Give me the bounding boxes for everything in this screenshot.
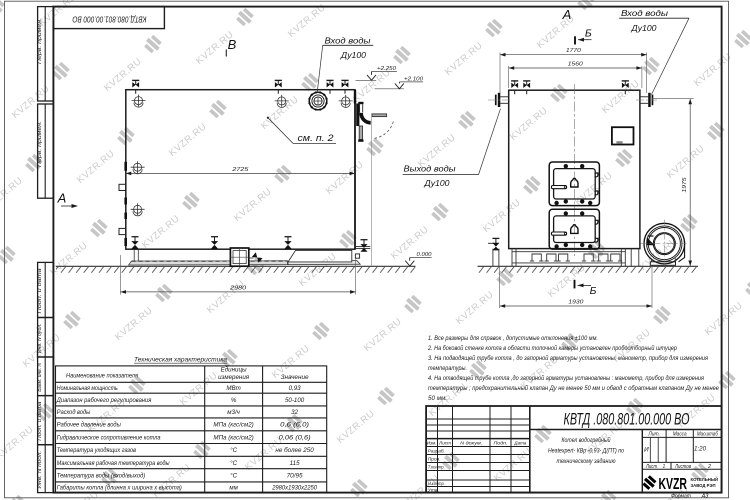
- svg-text:Ду100: Ду100: [630, 24, 657, 33]
- svg-text:KVZR: KVZR: [659, 476, 688, 493]
- svg-text:Температура воды (вход/выход): Температура воды (вход/выход): [57, 472, 145, 480]
- svg-text:Расход воды: Расход воды: [57, 408, 91, 416]
- svg-text:температуры ; предохранительны: температуры ; предохранительный клапан Д…: [428, 384, 719, 392]
- svg-text:Масштаб: Масштаб: [697, 432, 718, 438]
- svg-text:Н.контр.: Н.контр.: [428, 481, 445, 487]
- svg-text:3. На подводящей трубе котла: 3. На подводящей трубе котла , до запорн…: [428, 354, 709, 362]
- svg-text:Максимальная рабочая температу: Максимальная рабочая температура воды: [57, 459, 170, 467]
- svg-text:1560: 1560: [568, 62, 584, 68]
- svg-text:Вход воды: Вход воды: [621, 9, 668, 18]
- svg-text:°С: °С: [230, 447, 237, 454]
- svg-text:Лист: Лист: [438, 440, 451, 446]
- svg-text:0,6 (6,0): 0,6 (6,0): [280, 422, 309, 429]
- svg-text:Б: Б: [590, 285, 597, 297]
- svg-text:КВТД.080.801.00.000 ВО: КВТД.080.801.00.000 ВО: [73, 14, 147, 23]
- svg-text:МВт: МВт: [226, 385, 240, 392]
- svg-text:%: %: [231, 397, 237, 404]
- svg-text:Взам. инв. N: Взам. инв. N: [37, 363, 43, 392]
- svg-text:2980х1930х2250: 2980х1930х2250: [271, 484, 317, 491]
- svg-text:А3: А3: [701, 494, 710, 500]
- svg-text:Рабочее давление воды: Рабочее давление воды: [57, 421, 121, 429]
- svg-text:0,06 (0,6): 0,06 (0,6): [279, 434, 311, 441]
- svg-text:+2.250: +2.250: [377, 66, 397, 72]
- svg-text:1. Все размеры для справок ,: 1. Все размеры для справок , допустимые …: [428, 334, 598, 342]
- svg-text:МПа (кгс/см2): МПа (кгс/см2): [213, 423, 253, 429]
- svg-text:Котел водогрейный: Котел водогрейный: [562, 436, 611, 444]
- svg-text:Перв. примен.: Перв. примен.: [37, 121, 43, 167]
- svg-text:0,93: 0,93: [289, 385, 302, 392]
- svg-text:Heatexpert- КВр -0,93- Д(ПТ): Heatexpert- КВр -0,93- Д(ПТ) по: [548, 447, 624, 454]
- svg-text:техническому заданию: техническому заданию: [557, 457, 616, 465]
- svg-text:Выход воды: Выход воды: [404, 164, 456, 173]
- svg-text:Б: Б: [585, 27, 592, 39]
- svg-text:А: А: [57, 191, 67, 206]
- svg-text:А: А: [562, 7, 572, 22]
- svg-text:32: 32: [291, 409, 298, 416]
- svg-text:Перв. примен.: Перв. примен.: [37, 18, 43, 64]
- svg-text:Лит.: Лит.: [647, 432, 660, 438]
- svg-text:Подп. и дата: Подп. и дата: [37, 401, 43, 440]
- svg-text:Инв. N дубл.: Инв. N дубл.: [37, 324, 43, 354]
- svg-text:м3/ч: м3/ч: [227, 409, 240, 416]
- svg-text:ЗАВОД РЭП: ЗАВОД РЭП: [691, 483, 716, 488]
- svg-text:Разраб.: Разраб.: [428, 449, 445, 455]
- svg-text:измерения: измерения: [218, 374, 250, 381]
- svg-text:50-100: 50-100: [285, 397, 305, 404]
- svg-text:Изм.: Изм.: [427, 440, 437, 446]
- svg-text:Гидравлическое сопротивление к: Гидравлическое сопротивление котла: [57, 433, 161, 441]
- svg-text:2980: 2980: [229, 285, 247, 291]
- svg-text:Подп.: Подп.: [494, 440, 508, 446]
- svg-text:Дата: Дата: [513, 440, 526, 446]
- svg-text:КВТД .080.801.00.000 ВО: КВТД .080.801.00.000 ВО: [564, 410, 690, 429]
- svg-text:Листов: Листов: [674, 464, 691, 470]
- svg-text:не более 250: не более 250: [275, 447, 314, 454]
- svg-text:Вход воды: Вход воды: [325, 37, 371, 46]
- svg-text:Подп. и дата: Подп. и дата: [37, 268, 43, 313]
- svg-text:°С: °С: [230, 473, 237, 480]
- svg-text:Наименование показателя: Наименование показателя: [66, 373, 139, 380]
- svg-text:1:20: 1:20: [694, 446, 707, 453]
- svg-text:Формат: Формат: [671, 494, 691, 500]
- svg-text:Температура уходящих газов: Температура уходящих газов: [57, 446, 137, 454]
- svg-text:Значение: Значение: [281, 374, 309, 381]
- svg-text:0.000: 0.000: [417, 252, 433, 258]
- svg-text:Пров.: Пров.: [428, 457, 441, 463]
- svg-text:Ду100: Ду100: [340, 51, 367, 60]
- svg-text:см. п. 2: см. п. 2: [298, 133, 334, 143]
- svg-text:1975: 1975: [682, 177, 688, 193]
- svg-text:2725: 2725: [231, 167, 249, 173]
- svg-text:В: В: [228, 37, 237, 52]
- svg-text:Ду100: Ду100: [423, 179, 450, 188]
- svg-text:Лист: Лист: [645, 464, 657, 470]
- svg-text:115: 115: [290, 460, 300, 467]
- svg-text:Инв. N подл.: Инв. N подл.: [37, 451, 43, 489]
- svg-text:Единицы: Единицы: [221, 367, 247, 374]
- svg-text:Утв.: Утв.: [428, 487, 439, 493]
- svg-text:2: 2: [707, 464, 711, 470]
- svg-text:И: И: [644, 447, 649, 454]
- svg-text:мм: мм: [229, 484, 238, 491]
- svg-text:КОТЕЛЬНЫЙ: КОТЕЛЬНЫЙ: [691, 475, 719, 482]
- svg-text:1: 1: [663, 464, 666, 470]
- svg-text:70/95: 70/95: [287, 473, 304, 480]
- svg-text:N докум.: N докум.: [460, 440, 482, 446]
- svg-text:1930: 1930: [568, 299, 584, 305]
- svg-text:2. На боковой стенке котла в: 2. На боковой стенке котла в области топ…: [427, 344, 677, 352]
- svg-text:+2.100: +2.100: [404, 77, 424, 83]
- svg-text:Т.контр.: Т.контр.: [428, 465, 445, 471]
- svg-text:Масса: Масса: [673, 432, 687, 438]
- svg-text:МПа (кгс/см2): МПа (кгс/см2): [213, 435, 253, 441]
- svg-text:Техническая характеристика: Техническая характеристика: [134, 357, 227, 364]
- svg-text:50 мм.: 50 мм.: [428, 395, 447, 402]
- svg-text:°С: °С: [230, 460, 237, 467]
- svg-text:Диапазон рабочего регулировани: Диапазон рабочего регулирования: [56, 396, 152, 404]
- svg-text:1770: 1770: [566, 48, 582, 54]
- svg-text:4. На отводящей трубе котла ,: 4. На отводящей трубе котла ,до запорной…: [428, 374, 705, 382]
- svg-text:Габариты котла (длинна х ширин: Габариты котла (длинна х ширина х высота…: [57, 483, 182, 491]
- svg-text:температуры.: температуры.: [428, 365, 467, 372]
- svg-text:Номинальная мощность: Номинальная мощность: [57, 385, 118, 392]
